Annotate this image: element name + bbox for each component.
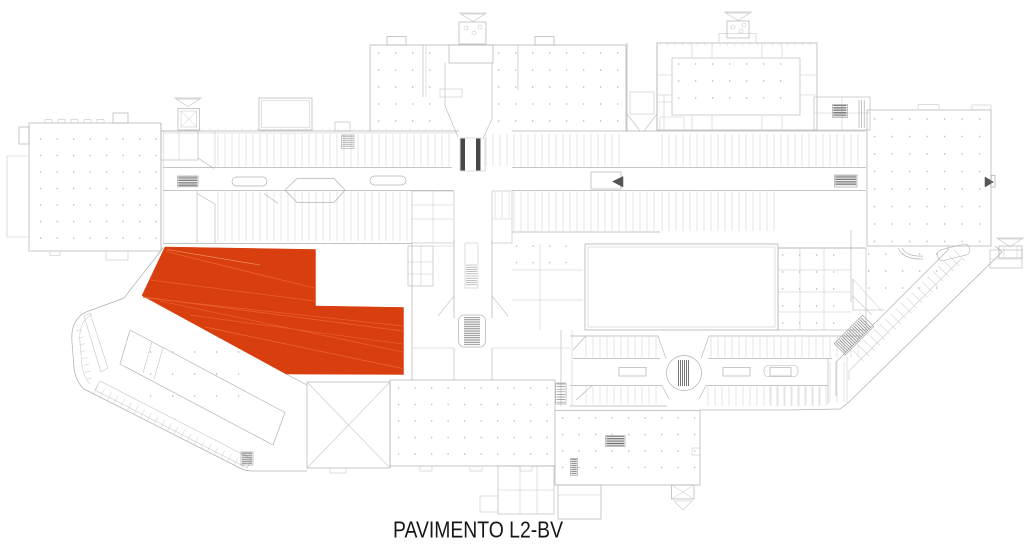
svg-text:PAVIMENTO L2-BV: PAVIMENTO L2-BV	[393, 517, 564, 543]
